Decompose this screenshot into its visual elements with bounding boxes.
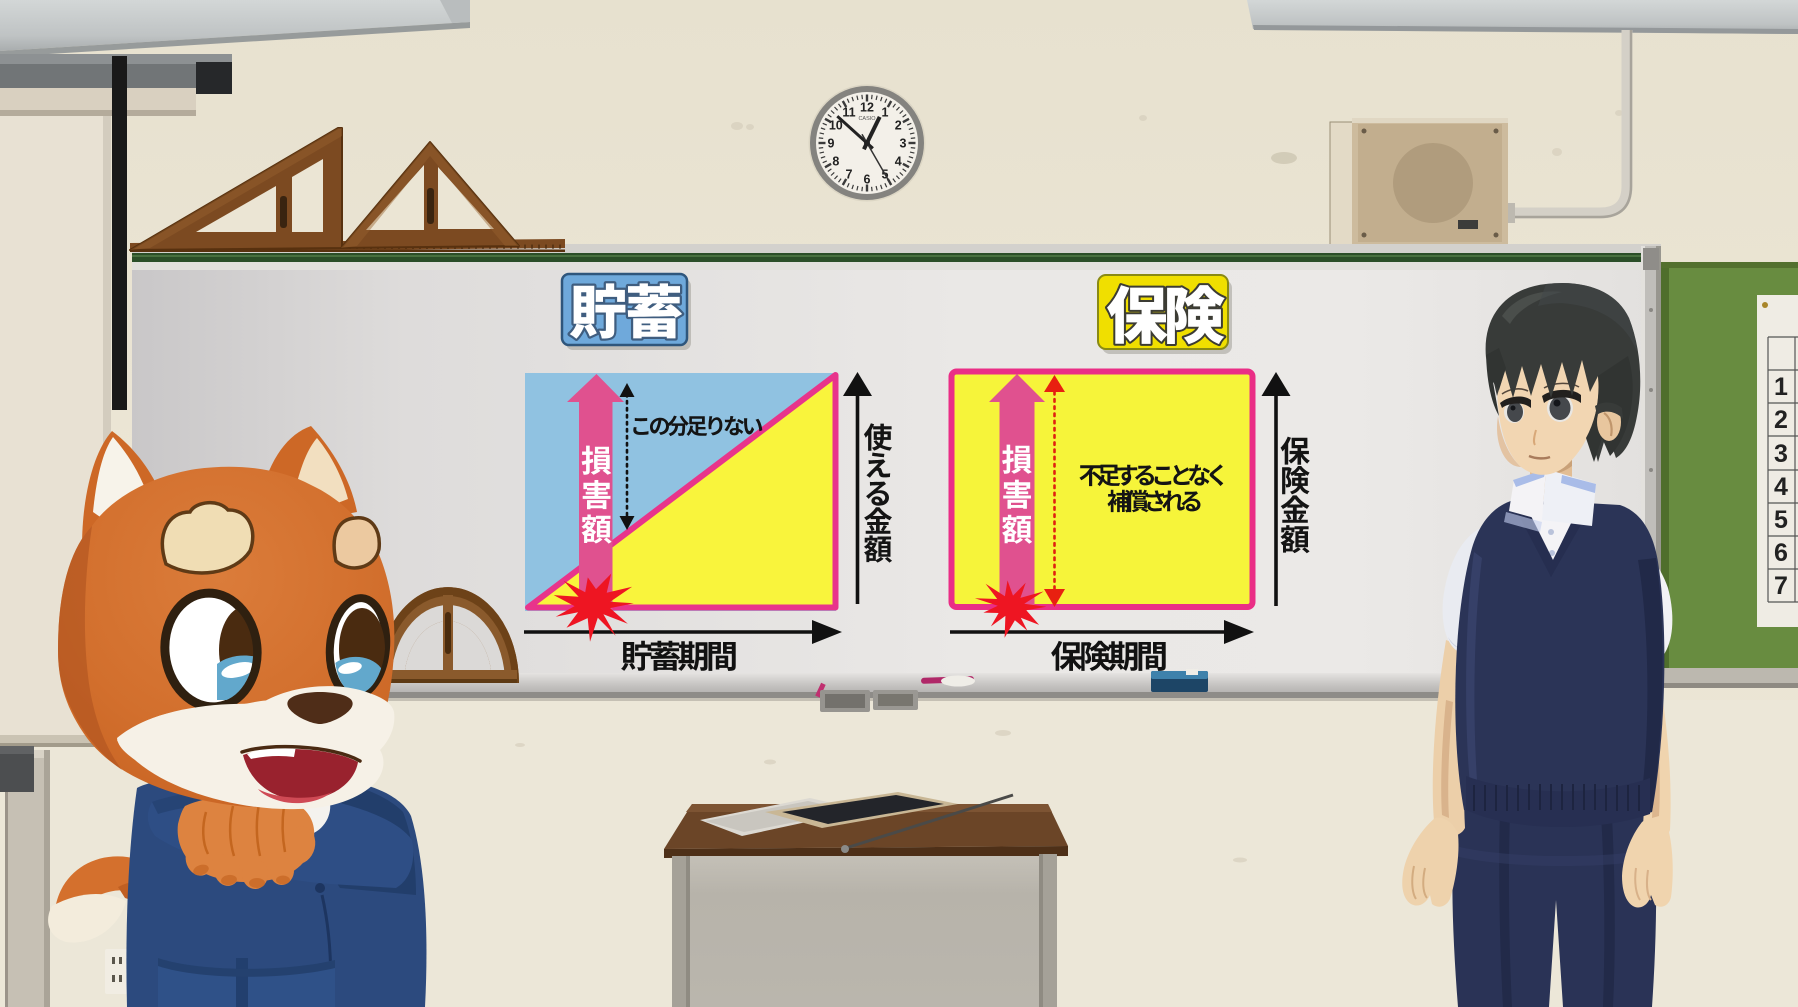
svg-text:CASIO: CASIO	[858, 116, 876, 122]
svg-text:2: 2	[1774, 406, 1788, 434]
svg-text:3: 3	[1774, 440, 1788, 468]
svg-text:1: 1	[882, 105, 889, 119]
svg-text:12: 12	[860, 101, 874, 115]
svg-text:6: 6	[1774, 539, 1788, 567]
svg-text:2: 2	[895, 119, 902, 133]
svg-text:9: 9	[828, 137, 835, 151]
svg-text:6: 6	[864, 173, 871, 187]
svg-text:1: 1	[1774, 373, 1788, 401]
svg-text:7: 7	[1774, 572, 1788, 600]
svg-text:11: 11	[842, 105, 855, 119]
svg-text:4: 4	[895, 155, 902, 169]
svg-text:4: 4	[1774, 473, 1788, 501]
svg-text:8: 8	[832, 155, 839, 169]
svg-text:7: 7	[846, 168, 853, 182]
svg-text:5: 5	[1774, 506, 1788, 534]
svg-text:3: 3	[900, 137, 907, 151]
